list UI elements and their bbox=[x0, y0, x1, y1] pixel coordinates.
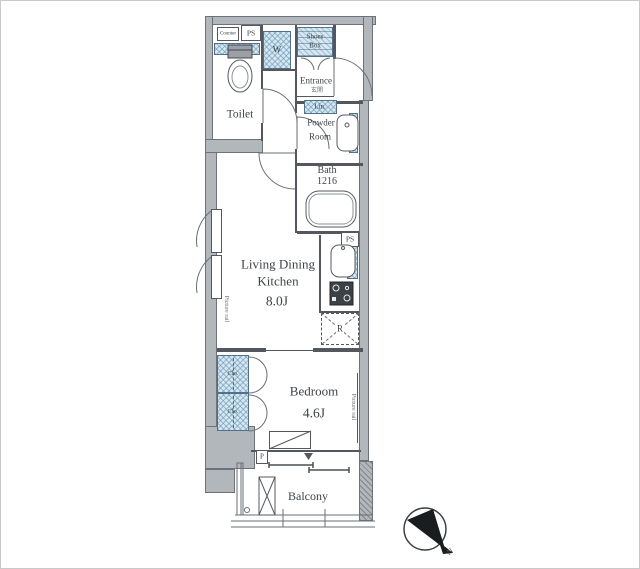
sink-water-band bbox=[347, 243, 358, 279]
linen-label: Lin. bbox=[314, 104, 325, 111]
partition-toilet-right-lower bbox=[261, 123, 263, 141]
balcony-railing bbox=[231, 521, 375, 527]
balcony-railing-posts bbox=[283, 509, 325, 527]
partition-ldk-bedroom-right bbox=[313, 348, 363, 352]
balcony-left-wall bbox=[237, 463, 243, 515]
wall-toilet-bottom bbox=[205, 139, 263, 153]
washer-alcove-bottom bbox=[263, 69, 295, 71]
balcony-label: Balcony bbox=[288, 490, 328, 502]
compass-north-label: N bbox=[445, 547, 454, 557]
entrance-step-line bbox=[297, 96, 334, 97]
toilet-label: Toilet bbox=[227, 109, 254, 121]
ldk-label-line2: Kitchen bbox=[257, 275, 298, 288]
partition-kitchen-counter-edge bbox=[319, 235, 321, 313]
bedroom-label: Bedroom bbox=[290, 385, 338, 398]
wall-bottom-left-a bbox=[205, 426, 255, 469]
counter-label: Counter bbox=[220, 32, 236, 37]
shoes-box-label-line1: Shoes bbox=[307, 34, 324, 41]
pipe-label: P bbox=[260, 454, 264, 461]
balcony-drain bbox=[245, 508, 250, 513]
ps-toilet-label: PS bbox=[247, 29, 255, 37]
balcony-partition-board bbox=[259, 477, 275, 515]
toilet-water-band bbox=[214, 43, 260, 55]
toilet-door-swing bbox=[263, 89, 297, 123]
closet-upper-door-a bbox=[249, 357, 267, 375]
entrance-step-note: 玄関 bbox=[311, 88, 323, 94]
powder-room-label-line2: Room bbox=[309, 133, 331, 142]
bath-label-line1: Bath bbox=[318, 166, 337, 176]
ldk-door-swing bbox=[259, 153, 295, 189]
partition-ldk-bedroom-left bbox=[217, 348, 266, 352]
picture-rail-bedroom-label: Picture rail bbox=[350, 394, 356, 421]
wall-balcony-right bbox=[359, 461, 373, 521]
ldk-label-line1: Living Dining bbox=[241, 258, 315, 271]
bathtub bbox=[306, 191, 356, 227]
wall-bottom-left-b bbox=[205, 469, 235, 493]
sliding-door-panel-b bbox=[309, 467, 349, 473]
stove bbox=[330, 282, 353, 305]
wall-top bbox=[205, 16, 376, 25]
ldk-size-label: 8.0J bbox=[266, 294, 288, 308]
closet-lower-door-a bbox=[249, 395, 267, 413]
shoes-box-door-left bbox=[301, 58, 314, 70]
partition-corridor-right-lower bbox=[295, 149, 297, 233]
wall-right-upper bbox=[363, 16, 373, 101]
shoes-box-door-right bbox=[318, 58, 330, 70]
closet-upper-label: Clo. bbox=[227, 371, 238, 378]
wall-right-lower bbox=[359, 100, 369, 461]
ps-kitchen-label: PS bbox=[346, 235, 354, 243]
powder-room-label-line1: Powder bbox=[307, 119, 335, 128]
bedroom-east-window-line bbox=[357, 373, 358, 443]
picture-rail-ldk-label: Picture rail bbox=[223, 296, 229, 323]
entrance-wall-stub bbox=[333, 25, 336, 59]
closet-upper-door-b bbox=[249, 375, 267, 393]
door-direction-mark bbox=[304, 453, 313, 460]
vanity-water-band bbox=[349, 113, 358, 153]
bedroom-sliding-door-line bbox=[266, 350, 313, 351]
closet-lower-label: Clo. bbox=[227, 409, 238, 416]
refrigerator-label: R bbox=[336, 325, 344, 334]
bedroom-desk bbox=[269, 431, 311, 449]
window-west-lower bbox=[211, 255, 222, 299]
entrance-label: Entrance bbox=[300, 77, 332, 86]
floor-plan-canvas: Toilet Entrance 玄関 Powder Room Bath 1216… bbox=[0, 0, 640, 569]
compass-north-arrow bbox=[404, 508, 453, 554]
bath-label-line2: 1216 bbox=[317, 177, 337, 187]
shoes-box-label-line2: Box bbox=[309, 43, 321, 50]
bedroom-size-label: 4.6J bbox=[303, 406, 325, 420]
wall-left-main bbox=[205, 146, 217, 456]
wall-left-upper bbox=[205, 16, 213, 146]
washer-label: W bbox=[273, 46, 282, 55]
sliding-door-panel-a bbox=[269, 462, 313, 468]
window-west-upper bbox=[211, 209, 222, 253]
